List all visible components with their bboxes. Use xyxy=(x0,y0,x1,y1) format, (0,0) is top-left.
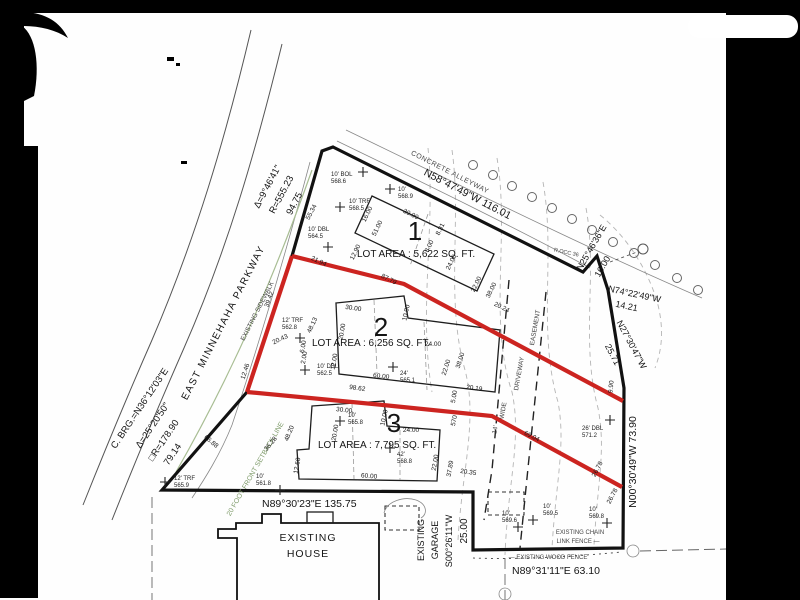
garage-label-line1: EXISTING xyxy=(416,519,426,561)
lot-2-area-label: LOT AREA : 6,256 SQ. FT. xyxy=(312,338,430,349)
garage-label-line2: GARAGE xyxy=(430,521,440,560)
bearing-garage-side: S00°26'11"W xyxy=(444,514,454,567)
svg-text:10': 10' xyxy=(348,413,356,419)
svg-text:10' DBL: 10' DBL xyxy=(308,227,330,233)
dimension-label: 24.00 xyxy=(403,427,420,434)
svg-text:10': 10' xyxy=(502,511,510,517)
garage-side-length: 25.00 xyxy=(459,518,470,543)
svg-text:565.1: 565.1 xyxy=(400,378,416,384)
bearing-southeast: N89°31'11"E 63.10 xyxy=(512,565,600,577)
svg-text:10' DBL: 10' DBL xyxy=(317,364,339,370)
house-label-line1: EXISTING xyxy=(279,532,336,544)
dimension-label: 24.00 xyxy=(425,341,442,348)
svg-text:561.8: 561.8 xyxy=(256,481,272,487)
chain-fence-label-line1: EXISTING CHAIN xyxy=(556,530,604,536)
svg-text:10' TRF: 10' TRF xyxy=(349,199,370,205)
svg-text:12' TRF: 12' TRF xyxy=(282,318,303,324)
bearing-south: N89°30'23"E 135.75 xyxy=(262,498,357,510)
svg-text:565.8: 565.8 xyxy=(348,420,364,426)
svg-text:569.5: 569.5 xyxy=(543,511,559,517)
svg-text:10': 10' xyxy=(398,187,406,193)
svg-text:10': 10' xyxy=(543,504,551,510)
svg-text:565.9: 565.9 xyxy=(174,483,190,489)
dimension-label: 60.00 xyxy=(361,472,378,480)
easement-label-14ft: 14' xyxy=(491,425,499,435)
paper-background xyxy=(0,0,800,600)
svg-text:10': 10' xyxy=(589,507,597,513)
house-label-line2: HOUSE xyxy=(287,548,329,560)
svg-text:568.8: 568.8 xyxy=(397,459,413,465)
svg-text:24': 24' xyxy=(400,371,408,377)
svg-text:568.5: 568.5 xyxy=(349,206,365,212)
svg-text:569.8: 569.8 xyxy=(589,514,605,520)
svg-text:568.9: 568.9 xyxy=(398,194,414,200)
svg-text:568.6: 568.6 xyxy=(331,179,347,185)
svg-text:564.5: 564.5 xyxy=(308,234,324,240)
chain-fence-label-line2: LINK FENCE — xyxy=(556,539,599,545)
svg-text:42': 42' xyxy=(397,452,405,458)
bearing-east: N00°30'49"W 73.90 xyxy=(627,416,639,508)
svg-text:569.6: 569.6 xyxy=(502,518,518,524)
svg-text:12' TRF: 12' TRF xyxy=(174,476,195,482)
svg-text:562.8: 562.8 xyxy=(282,325,298,331)
svg-text:562.5: 562.5 xyxy=(317,371,333,377)
scanned-survey-plat: EAST MINNEHAHA PARKWAY Δ=9°46'41" R=555.… xyxy=(0,0,800,600)
dimension-label: 9.90 xyxy=(607,380,615,394)
scan-frame-notch xyxy=(688,15,798,38)
wood-fence-label: — EXISTING WOOD FENCE xyxy=(509,555,588,561)
svg-text:571.2: 571.2 xyxy=(582,433,598,439)
survey-drawing: EAST MINNEHAHA PARKWAY Δ=9°46'41" R=555.… xyxy=(0,0,800,600)
svg-text:26' DBL: 26' DBL xyxy=(582,426,604,432)
svg-text:10' BOL: 10' BOL xyxy=(331,172,353,178)
svg-text:10': 10' xyxy=(256,474,264,480)
